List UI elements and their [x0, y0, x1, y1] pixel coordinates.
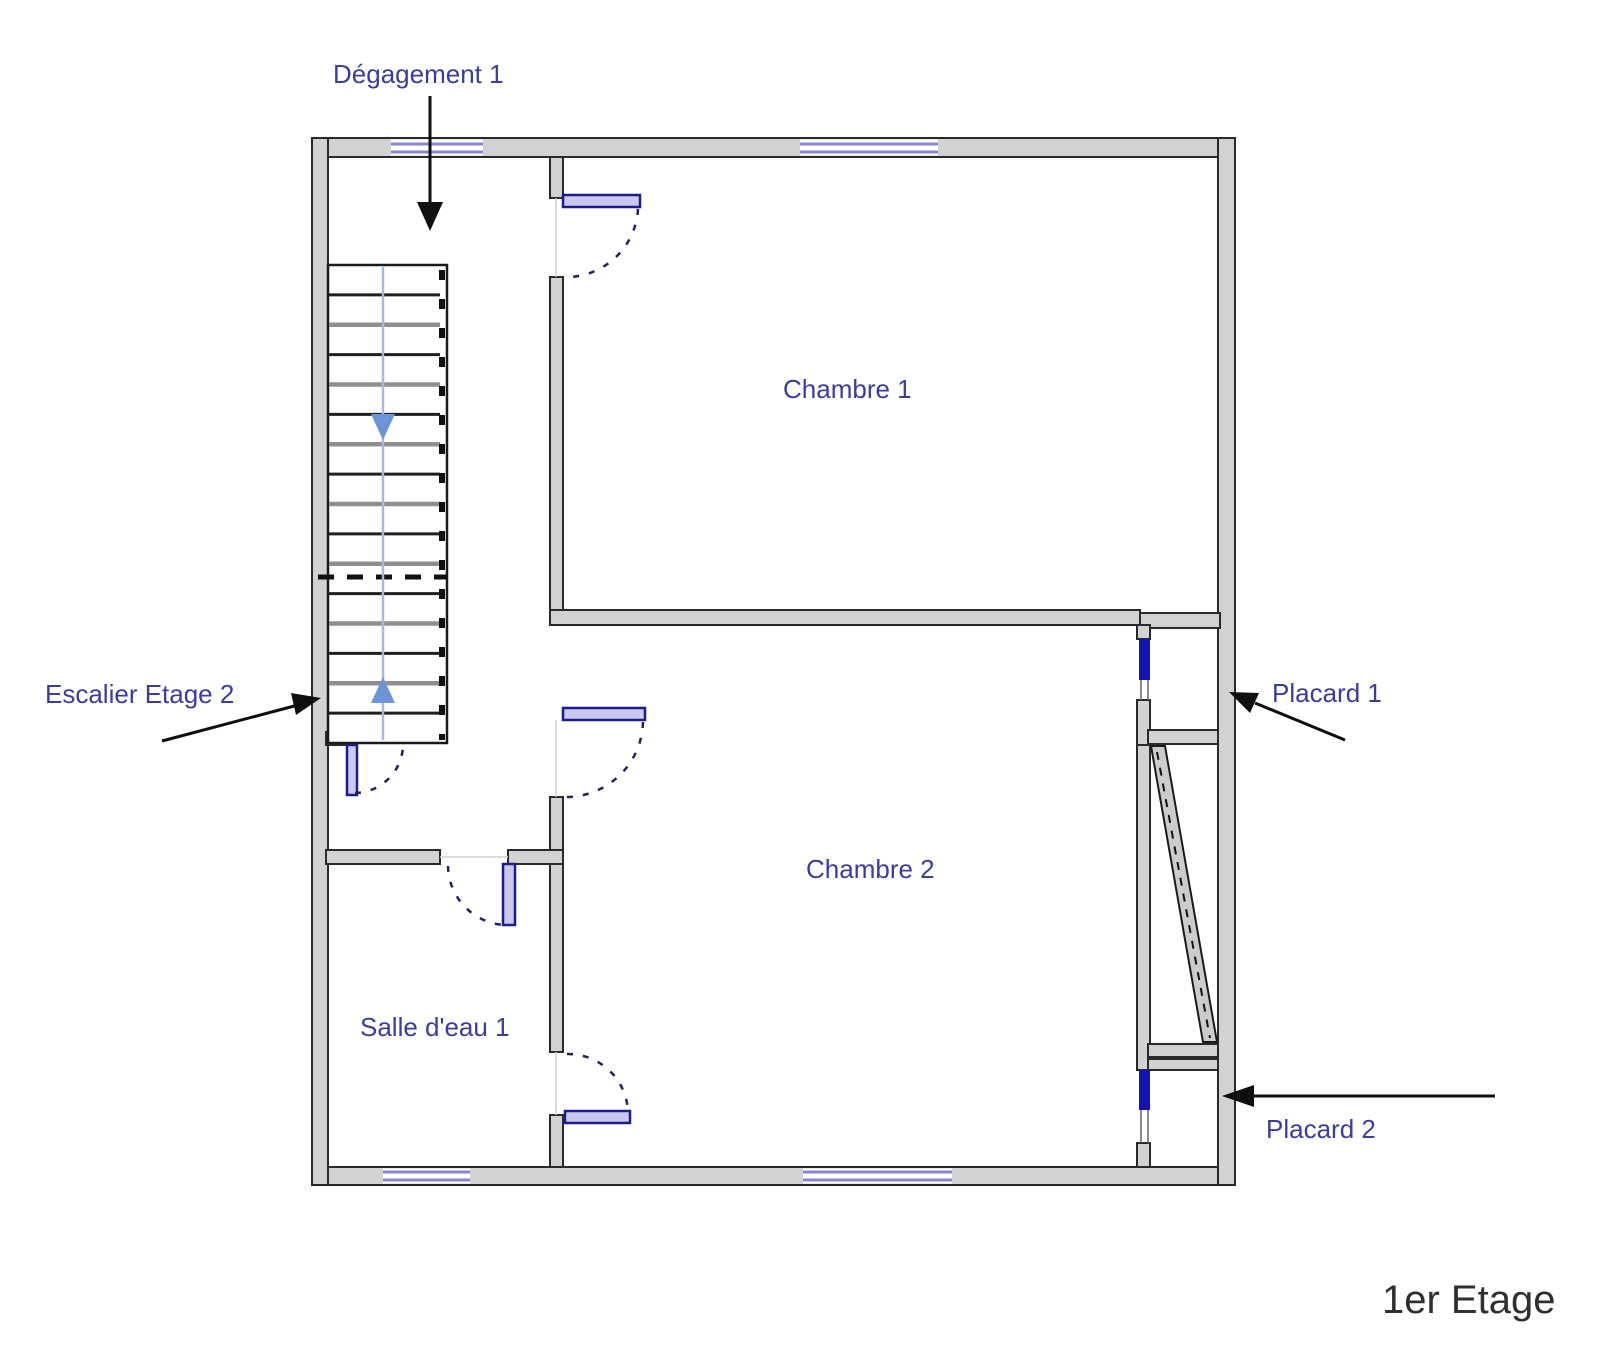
- corridor-wall-top: [550, 157, 563, 198]
- salle-eau-top-wall-left: [326, 850, 440, 864]
- shaft-top-wall: [1148, 730, 1218, 744]
- door-panel: [503, 864, 515, 925]
- placard1-door: [1139, 639, 1150, 680]
- room-label-degagement: Dégagement 1: [333, 59, 504, 89]
- annotation-placard1: Placard 1: [1229, 678, 1382, 740]
- door-panel: [565, 1111, 630, 1123]
- room-label-chambre2: Chambre 2: [806, 854, 935, 884]
- placard2-door: [1139, 1070, 1150, 1110]
- placard2-left-wall-bottom: [1137, 1143, 1150, 1167]
- salle-eau-top-wall-right: [508, 850, 563, 864]
- door-swing-arc: [567, 1054, 628, 1113]
- shaft-diagonal: [1151, 746, 1217, 1042]
- floor-plan-page: Dégagement 1 Escalier Etage 2 Placard 1 …: [0, 0, 1600, 1346]
- window-salle-eau: [383, 1169, 470, 1184]
- annotation-arrow-line: [162, 705, 298, 741]
- annotation-arrow-line: [1255, 703, 1345, 740]
- arrow-down-icon: [417, 202, 443, 231]
- outer-wall-left: [312, 138, 328, 1185]
- corridor-wall-low: [550, 797, 563, 853]
- door-chambre2: [563, 708, 645, 797]
- floor-plan-drawing: Dégagement 1 Escalier Etage 2 Placard 1 …: [0, 0, 1600, 1346]
- annotation-placard2: Placard 2: [1222, 1085, 1495, 1144]
- room-label-salle-eau: Salle d'eau 1: [360, 1012, 510, 1042]
- annotations: Dégagement 1 Escalier Etage 2 Placard 1 …: [45, 59, 1495, 1144]
- door-swing-arc: [448, 866, 505, 925]
- door-panel: [563, 708, 645, 720]
- room-label-placard1: Placard 1: [1272, 678, 1382, 708]
- chambre-divider-wall: [550, 610, 1140, 625]
- salle-eau-right-wall-upper: [550, 864, 563, 1052]
- outer-wall-right: [1218, 138, 1235, 1185]
- placard2-top-wall: [1148, 1059, 1218, 1070]
- door-swing-arc: [563, 209, 638, 277]
- shaft-left-wall: [1137, 745, 1150, 1070]
- window-degagement: [391, 140, 483, 156]
- annotation-escalier: Escalier Etage 2: [45, 679, 321, 741]
- opening-face-lines: [440, 198, 556, 1115]
- stair-door-panel: [347, 745, 357, 795]
- door-salle-eau-corridor: [448, 864, 515, 925]
- shaft-bottom-wall: [1148, 1044, 1218, 1057]
- door-salle-eau-chambre2: [565, 1054, 630, 1123]
- window-chambre2: [803, 1169, 952, 1184]
- door-panel: [563, 195, 640, 207]
- door-chambre1: [563, 195, 640, 277]
- floor-title: 1er Etage: [1382, 1278, 1555, 1322]
- room-label-placard2: Placard 2: [1266, 1114, 1376, 1144]
- doors: [448, 195, 645, 1123]
- window-chambre1: [800, 140, 938, 156]
- room-label-chambre1: Chambre 1: [783, 374, 912, 404]
- staircase: [318, 265, 447, 795]
- room-label-escalier: Escalier Etage 2: [45, 679, 234, 709]
- salle-eau-right-wall-lower: [550, 1115, 563, 1167]
- stair-door-swing-arc: [355, 746, 403, 793]
- door-swing-arc: [565, 722, 643, 797]
- corridor-wall-mid: [550, 277, 563, 612]
- placard1-top-wall: [1140, 613, 1220, 628]
- placard1-left-wall-top: [1137, 625, 1150, 639]
